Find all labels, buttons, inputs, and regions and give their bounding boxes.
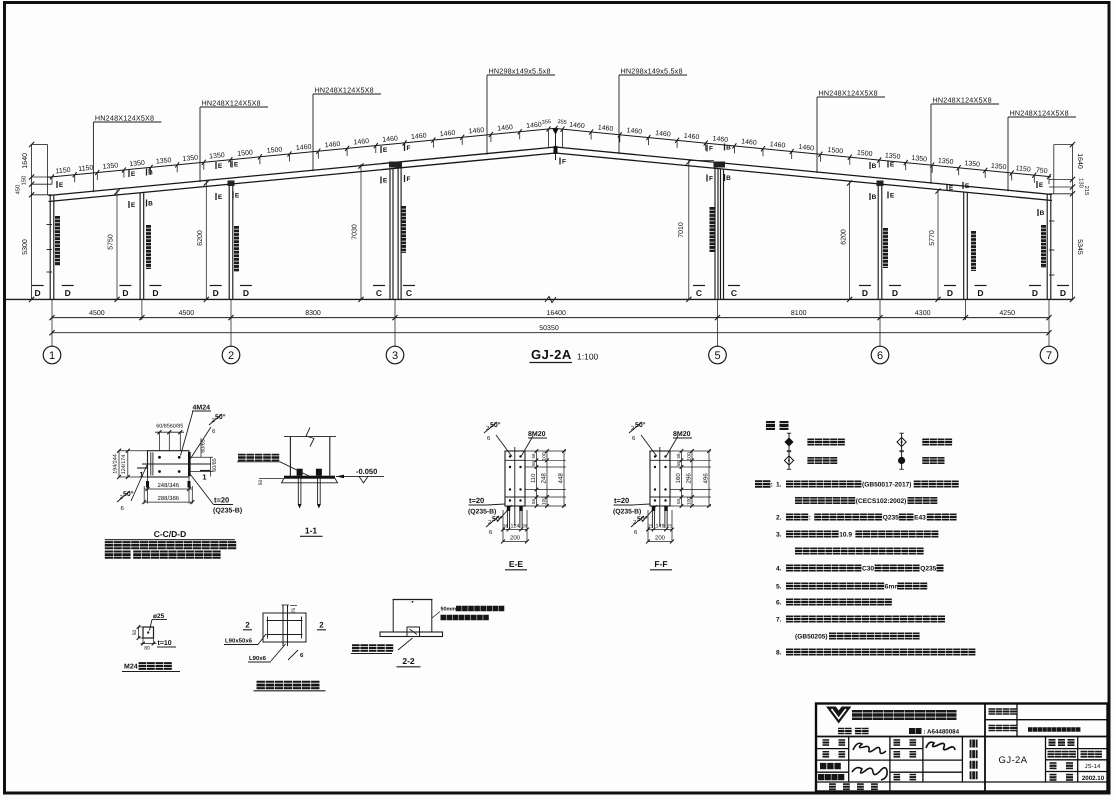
svg-text:1460: 1460 (353, 138, 369, 146)
svg-text:100: 100 (542, 497, 548, 506)
svg-text:2: 2 (245, 621, 250, 630)
svg-text:75: 75 (291, 608, 297, 614)
svg-text:60/65: 60/65 (201, 439, 207, 453)
svg-text:HN248X124X5X8: HN248X124X5X8 (95, 114, 154, 123)
svg-text:50mm: 50mm (441, 607, 457, 613)
svg-text:B: B (1040, 210, 1045, 217)
svg-text:C: C (731, 288, 737, 298)
svg-text:C-C/D-D: C-C/D-D (154, 529, 187, 539)
svg-text:4500: 4500 (89, 310, 105, 317)
svg-text:215: 215 (1083, 186, 1090, 196)
svg-text:E: E (890, 193, 895, 200)
svg-text:1500: 1500 (266, 146, 282, 154)
svg-text:Q235: Q235 (883, 515, 899, 522)
svg-text:D: D (1032, 288, 1038, 298)
svg-text:160: 160 (675, 473, 682, 484)
svg-text:L90x50x6: L90x50x6 (225, 638, 253, 645)
svg-text:B: B (872, 163, 877, 170)
svg-text:248: 248 (541, 473, 548, 484)
svg-text:D: D (862, 288, 868, 298)
svg-text:1640: 1640 (1076, 153, 1083, 169)
svg-text:50: 50 (258, 480, 264, 486)
svg-text:5770: 5770 (929, 230, 936, 246)
svg-text:1-1: 1-1 (305, 526, 318, 536)
svg-text:4250: 4250 (999, 310, 1015, 317)
svg-text:D: D (243, 288, 249, 298)
svg-text:E: E (235, 193, 240, 200)
svg-text:100: 100 (687, 497, 693, 506)
svg-text:58: 58 (531, 453, 536, 458)
svg-text:D: D (122, 288, 128, 298)
svg-text:HN298x149x5.5x8: HN298x149x5.5x8 (489, 67, 551, 76)
svg-text:: A64480084: : A64480084 (924, 729, 960, 736)
svg-text:HN248X124X5X8: HN248X124X5X8 (933, 96, 992, 105)
svg-text:38: 38 (503, 524, 509, 529)
svg-text:2.: 2. (776, 515, 782, 522)
svg-text:(GB50205): (GB50205) (795, 634, 828, 641)
svg-text:F: F (709, 146, 713, 153)
svg-text:50350: 50350 (539, 325, 559, 332)
svg-text:M24: M24 (124, 664, 138, 671)
svg-text:D: D (947, 288, 953, 298)
svg-text:D: D (213, 288, 219, 298)
svg-text:1.: 1. (776, 482, 782, 489)
svg-text:E: E (131, 202, 136, 209)
svg-text:4300: 4300 (915, 310, 931, 317)
svg-text:D: D (892, 288, 898, 298)
svg-text:8100: 8100 (791, 310, 807, 317)
svg-text:6200: 6200 (197, 230, 204, 246)
svg-text:16400: 16400 (546, 310, 566, 317)
svg-text:E: E (218, 163, 223, 170)
svg-text:8M20: 8M20 (673, 431, 691, 438)
svg-text:-0.050: -0.050 (356, 467, 377, 476)
svg-text:1350: 1350 (129, 160, 145, 168)
svg-text:1640: 1640 (22, 153, 29, 169)
svg-text:D: D (1060, 288, 1066, 298)
svg-text:7030: 7030 (352, 224, 359, 240)
svg-text:1460: 1460 (382, 135, 398, 143)
svg-text:GJ-2A: GJ-2A (531, 347, 572, 362)
svg-text:60/85: 60/85 (212, 458, 218, 472)
svg-text:(GB50017-2017): (GB50017-2017) (862, 482, 911, 489)
svg-text:6200: 6200 (841, 229, 848, 245)
svg-text:E: E (890, 162, 895, 169)
svg-text:E: E (383, 178, 388, 185)
svg-text:F: F (407, 145, 411, 152)
svg-text:1500: 1500 (237, 149, 253, 157)
svg-text:HN248X124X5X8: HN248X124X5X8 (1010, 109, 1069, 118)
svg-text:E: E (965, 183, 970, 190)
svg-text:4M24: 4M24 (193, 405, 211, 412)
svg-text:150: 150 (21, 176, 28, 186)
svg-text:124: 124 (511, 524, 520, 530)
svg-text:C: C (406, 288, 412, 298)
svg-text:200: 200 (655, 534, 666, 541)
svg-text:E: E (949, 185, 954, 192)
svg-text:200: 200 (510, 534, 521, 541)
svg-text:8300: 8300 (305, 310, 321, 317)
svg-text::: : (809, 515, 811, 522)
svg-text:D: D (977, 288, 983, 298)
svg-text:1350: 1350 (209, 152, 225, 160)
svg-text:L90x6: L90x6 (249, 655, 267, 662)
svg-text:1460: 1460 (296, 144, 312, 152)
svg-text:E-E: E-E (509, 559, 524, 569)
svg-text:B: B (148, 201, 153, 208)
svg-text:58: 58 (531, 461, 536, 466)
svg-text:1350: 1350 (156, 157, 172, 165)
svg-text:100: 100 (542, 452, 548, 461)
svg-text:(Q235-B): (Q235-B) (613, 509, 641, 516)
svg-text:B: B (872, 194, 877, 201)
svg-text:7: 7 (1046, 350, 1052, 362)
svg-text:8M20: 8M20 (528, 431, 546, 438)
svg-text:D: D (65, 288, 71, 298)
svg-text:E: E (234, 162, 239, 169)
svg-text:1460: 1460 (655, 130, 671, 138)
svg-text:1460: 1460 (411, 133, 427, 141)
svg-text:F: F (407, 176, 411, 183)
svg-text:7010: 7010 (678, 222, 685, 238)
svg-text:C: C (696, 288, 702, 298)
svg-text:E: E (383, 147, 388, 154)
svg-text:4500: 4500 (179, 310, 195, 317)
svg-text:5300: 5300 (22, 239, 29, 255)
svg-text:3: 3 (392, 350, 398, 362)
svg-text:1150: 1150 (78, 165, 94, 173)
svg-text:(CECS102:2002): (CECS102:2002) (856, 498, 907, 505)
svg-text:E43: E43 (914, 515, 926, 522)
svg-text:10.9: 10.9 (839, 532, 852, 539)
svg-text:5.: 5. (776, 584, 782, 591)
svg-text:4.: 4. (776, 566, 782, 573)
svg-text:58: 58 (676, 461, 681, 466)
svg-text:t=20: t=20 (214, 496, 229, 505)
svg-text:D: D (35, 288, 41, 298)
svg-text:5: 5 (714, 350, 720, 362)
svg-text:448: 448 (558, 473, 565, 484)
svg-text:1460: 1460 (324, 141, 340, 149)
svg-text:B: B (726, 145, 731, 152)
svg-text:2-2: 2-2 (402, 656, 415, 666)
svg-text:1350: 1350 (102, 162, 118, 170)
svg-text:E: E (218, 194, 223, 201)
svg-text:194/244: 194/244 (113, 454, 119, 474)
svg-text:t=20: t=20 (469, 496, 484, 505)
svg-text:25: 25 (648, 524, 654, 529)
svg-text:B: B (148, 170, 153, 177)
svg-text:F: F (562, 159, 566, 166)
svg-text:60/85: 60/85 (170, 423, 184, 429)
svg-text:288/386: 288/386 (157, 495, 179, 502)
svg-text:124/174: 124/174 (121, 455, 127, 475)
svg-text:1460: 1460 (468, 127, 484, 135)
svg-text:5345: 5345 (1076, 239, 1083, 255)
svg-text:E: E (1039, 182, 1044, 189)
svg-text:5750: 5750 (108, 234, 115, 250)
svg-text:1350: 1350 (938, 158, 954, 166)
svg-text:50: 50 (132, 630, 138, 636)
svg-text:58: 58 (676, 499, 681, 504)
svg-text:1150: 1150 (1015, 165, 1031, 173)
svg-text:GJ-2A: GJ-2A (999, 755, 1028, 766)
svg-text:HN298x149x5.5x8: HN298x149x5.5x8 (621, 67, 683, 76)
svg-text:B: B (726, 175, 731, 182)
svg-text:496: 496 (703, 473, 710, 484)
svg-text:149: 149 (656, 524, 665, 530)
svg-text:C30: C30 (862, 566, 874, 573)
svg-text:2002.10: 2002.10 (1082, 775, 1105, 782)
svg-text:1460: 1460 (526, 121, 542, 129)
svg-text:750: 750 (1036, 167, 1048, 175)
svg-text:1350: 1350 (182, 155, 198, 163)
svg-text:HN248X124X5X8: HN248X124X5X8 (202, 99, 261, 108)
svg-text:1: 1 (202, 473, 206, 482)
svg-text:E: E (131, 171, 136, 178)
svg-text:Q235: Q235 (920, 566, 936, 573)
svg-text::: : (771, 482, 773, 489)
svg-text:2: 2 (319, 621, 324, 630)
svg-text:58: 58 (676, 453, 681, 458)
svg-text:355: 355 (557, 119, 567, 126)
svg-text:D: D (152, 288, 158, 298)
svg-text:1: 1 (49, 350, 55, 362)
svg-text:296: 296 (686, 473, 693, 484)
svg-text:7.: 7. (776, 617, 782, 624)
svg-text:1460: 1460 (497, 124, 513, 132)
svg-text:100: 100 (687, 452, 693, 461)
svg-text:355: 355 (542, 119, 552, 126)
svg-text:ø25: ø25 (153, 613, 165, 620)
svg-text:80: 80 (144, 646, 150, 652)
svg-text:1460: 1460 (712, 136, 728, 144)
svg-text:450: 450 (15, 185, 22, 195)
svg-text:110: 110 (530, 473, 537, 483)
svg-text:HN248X124X5X8: HN248X124X5X8 (315, 86, 374, 95)
svg-text:F-F: F-F (654, 559, 667, 569)
svg-text:248/346: 248/346 (157, 482, 179, 489)
svg-text:2: 2 (228, 350, 234, 362)
svg-text:6.: 6. (776, 600, 782, 607)
svg-text:1:100: 1:100 (577, 352, 599, 362)
svg-text:60/85: 60/85 (156, 423, 170, 429)
svg-text:JS-14: JS-14 (1085, 763, 1101, 770)
svg-text:E: E (59, 182, 64, 189)
svg-text:58: 58 (531, 499, 536, 504)
svg-text:8.: 8. (776, 650, 782, 657)
svg-text:1460: 1460 (440, 130, 456, 138)
svg-text:3.: 3. (776, 532, 782, 539)
svg-text:C: C (376, 288, 382, 298)
svg-text:1150: 1150 (55, 167, 71, 175)
svg-text:F: F (709, 176, 713, 183)
svg-text:t=10: t=10 (158, 640, 172, 647)
svg-text:6: 6 (877, 350, 883, 362)
svg-text:t=20: t=20 (614, 496, 629, 505)
svg-text:(Q235-B): (Q235-B) (468, 509, 496, 516)
svg-text:(Q235-B): (Q235-B) (213, 507, 242, 515)
svg-text:HN248X124X5X8: HN248X124X5X8 (819, 89, 878, 98)
